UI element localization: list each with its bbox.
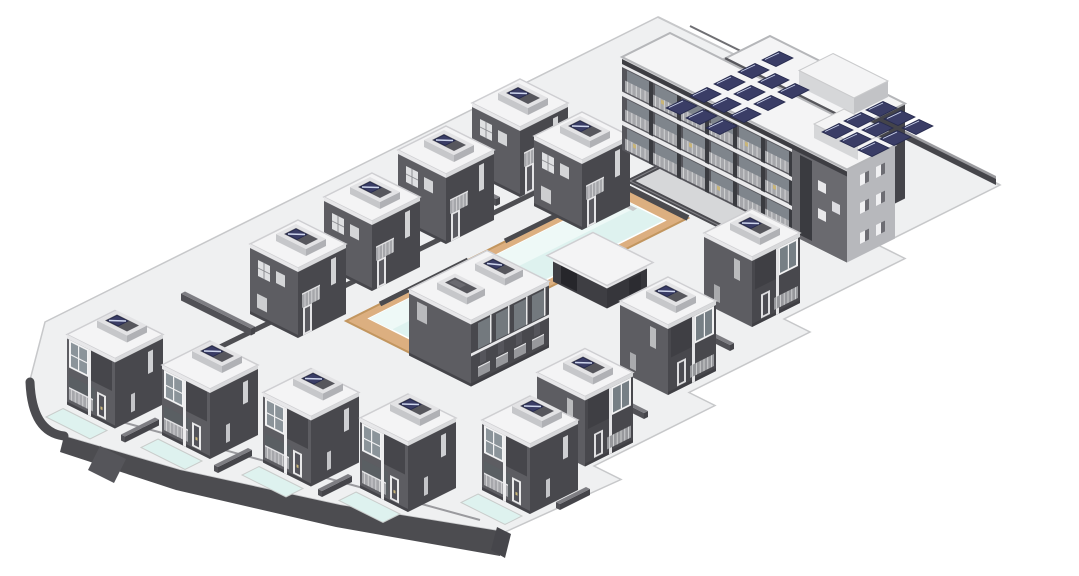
villa-bottom-5-se-detail [563, 435, 568, 460]
villa-bottom-5-se-detail [546, 478, 550, 498]
railing-baluster [631, 142, 632, 154]
railing-baluster [687, 141, 688, 153]
villa-right-3-se-detail [621, 430, 622, 442]
railing-baluster [645, 90, 646, 102]
villa-right-2-se-detail [700, 361, 701, 373]
villa-top-5 [534, 112, 630, 230]
villa-bottom-2-pillar [183, 380, 186, 448]
villa-bottom-4 [360, 394, 456, 512]
villa-top-4-well-solar-glint [510, 93, 527, 94]
villa-bottom-1-sw-detail [79, 392, 80, 404]
railing-baluster [631, 113, 632, 125]
villa-bottom-4-sw-detail [372, 476, 373, 488]
architectural-3d-model-viewport [0, 0, 1079, 576]
apartment-bay-mullion [761, 137, 765, 164]
villa-top-5-se-detail [615, 149, 620, 178]
railing-baluster [627, 111, 628, 122]
railing-baluster [785, 160, 786, 172]
railing-baluster [673, 162, 674, 174]
railing-baluster [636, 86, 637, 98]
villa-bottom-2-front-door [194, 425, 199, 448]
villa-bottom-2-sw-detail [174, 423, 175, 435]
villa-top-2-se-detail [385, 242, 386, 256]
railing-baluster [683, 139, 684, 150]
railing-baluster [640, 117, 641, 129]
villa-top-3-se-detail [453, 198, 454, 212]
villa-right-2-se-detail [707, 357, 708, 369]
railing-baluster [729, 132, 730, 144]
railing-baluster [631, 84, 632, 96]
apartment-bay-mullion [761, 166, 765, 193]
railing-baluster [655, 96, 656, 107]
villa-right-2-sw-detail [630, 352, 636, 371]
villa-top-5-well-solar-glint [572, 126, 589, 127]
railing-baluster [701, 147, 702, 159]
villa-bottom-1-well-solar-glint [109, 321, 126, 322]
railing-baluster [739, 196, 740, 207]
railing-baluster [757, 175, 758, 187]
tower-se-window-shade [865, 199, 869, 212]
railing-baluster [696, 145, 697, 157]
railing-baluster [748, 171, 749, 183]
villa-bottom-5-well-solar-glint [524, 406, 541, 407]
tower-se-window-shade [881, 191, 885, 204]
villa-bottom-1-se-detail [131, 393, 135, 413]
villa-right-3-se-detail [617, 432, 618, 444]
railing-baluster [724, 188, 725, 200]
tower-se-window-shade [881, 221, 885, 234]
railing-baluster [752, 173, 753, 185]
villa-bottom-5-sw-detail [490, 476, 491, 488]
railing-baluster [645, 148, 646, 160]
villa-bottom-4-front-door [392, 478, 397, 501]
villa-top-1-se-detail [331, 257, 336, 286]
villa-right-2-se-detail [704, 313, 705, 338]
villa-right-1-se-detail [788, 245, 789, 270]
villa-bottom-4-sw-detail [364, 472, 365, 484]
villa-bottom-5-front-door [514, 480, 519, 503]
villa-right-2-se-detail [692, 365, 693, 377]
villa-top-2-side-door [379, 259, 384, 286]
villa-right-3-well-solar-glint [575, 363, 592, 364]
villa-top-3-se-detail [456, 197, 457, 211]
villa-bottom-2-sw-detail [166, 419, 167, 431]
railing-baluster [664, 158, 665, 170]
villa-bottom-1-front-door [99, 395, 104, 418]
villa-top-4-se-detail [530, 150, 531, 164]
railing-baluster [739, 138, 740, 149]
villa-top-1-se-detail [311, 289, 312, 303]
villa-top-5-se-detail [589, 184, 590, 198]
railing-baluster [640, 146, 641, 158]
villa-bottom-1-se-detail [148, 350, 153, 375]
apartment-bay-mullion [649, 139, 653, 166]
railing-baluster [627, 140, 628, 151]
railing-baluster [636, 115, 637, 127]
railing-baluster [659, 98, 660, 110]
villa-bottom-2-se-detail [226, 423, 230, 443]
site-3d-render [0, 0, 1079, 576]
villa-bottom-5-sw-detail [497, 480, 498, 492]
villa-bottom-4-pillar [381, 433, 384, 501]
railing-baluster [659, 127, 660, 139]
villa-right-3-se-detail [628, 427, 629, 439]
villa-top-5-side-door [589, 198, 594, 225]
railing-baluster [780, 187, 781, 198]
villa-top-3-se-detail [479, 163, 484, 192]
villa-bottom-3-sw-detail [278, 452, 279, 464]
railing-baluster [687, 170, 688, 182]
villa-bottom-3-se-detail [344, 408, 349, 433]
villa-bottom-5-pillar [503, 435, 506, 503]
villa-bottom-4-sw-detail [375, 478, 376, 490]
railing-baluster [785, 189, 786, 201]
railing-baluster [711, 153, 712, 164]
villa-right-2-front-door [679, 361, 684, 384]
villa-top-1 [250, 220, 346, 338]
villa-right-2-se-detail [696, 363, 697, 375]
apartment-bay-mullion [677, 124, 681, 151]
railing-baluster [673, 133, 674, 145]
villa-top-4-side-door [527, 165, 532, 192]
railing-baluster [715, 155, 716, 167]
villa-top-5-se-detail [595, 181, 596, 195]
railing-baluster [767, 181, 768, 192]
villa-bottom-3-sw-detail [267, 447, 268, 459]
railing-baluster [627, 82, 628, 93]
villa-bottom-2 [162, 341, 258, 459]
villa-bottom-5 [482, 396, 578, 514]
villa-top-4-se-detail [527, 151, 528, 165]
villa-bottom-3-sw-detail [271, 448, 272, 460]
villa-right-1 [704, 209, 800, 327]
railing-baluster [752, 144, 753, 156]
villa-bottom-4-sw-detail [379, 480, 380, 492]
villa-top-3-side-door [453, 212, 458, 239]
villa-top-5-se-detail [599, 179, 600, 193]
railing-baluster [696, 174, 697, 186]
railing-baluster [757, 146, 758, 158]
villa-bottom-1-sw-detail [75, 390, 76, 402]
apartment-bay-mullion [649, 110, 653, 137]
villa-top-1-side-door [305, 306, 310, 333]
villa-bottom-5-sw-detail [501, 482, 502, 494]
villa-top-2-se-detail [405, 210, 410, 239]
railing-baluster [692, 172, 693, 184]
villa-right-1-front-door [763, 293, 768, 316]
villa-bottom-5-sw-detail [486, 474, 487, 486]
railing-baluster [645, 119, 646, 131]
villa-right-1-se-detail [791, 289, 792, 301]
railing-baluster [701, 176, 702, 188]
tower-se-window-shade [865, 171, 869, 184]
villa-right-1-se-detail [784, 293, 785, 305]
apartment-bay-mullion [705, 167, 709, 194]
tower-se-window-shade [881, 163, 885, 176]
villa-top-3-se-detail [459, 195, 460, 209]
villa-duplex-se-detail [544, 287, 546, 316]
railing-baluster [715, 184, 716, 196]
railing-baluster [780, 158, 781, 169]
villa-top-1-se-detail [308, 291, 309, 305]
railing-baluster [668, 160, 669, 172]
villa-right-3-front-door [596, 433, 601, 456]
railing-baluster [711, 182, 712, 193]
villa-top-1-se-detail [318, 286, 319, 300]
villa-top-3-se-detail [463, 193, 464, 207]
railing-baluster [664, 129, 665, 141]
villa-bottom-4-se-detail [441, 433, 446, 458]
apartment-bay-mullion [677, 153, 681, 180]
villa-bottom-1-sw-detail [71, 389, 72, 401]
railing-baluster [668, 131, 669, 143]
villa-right-3-se-detail [609, 436, 610, 448]
villa-bottom-3-pillar [284, 407, 287, 475]
railing-baluster [743, 169, 744, 181]
villa-right-1-se-detail [795, 287, 796, 299]
railing-baluster [720, 157, 721, 169]
railing-baluster [729, 190, 730, 202]
villa-duplex-se-detail [526, 296, 528, 325]
villa-right-2-se-detail [711, 355, 712, 367]
villa-top-1-se-detail [305, 292, 306, 306]
apartment-bay-mullion [733, 152, 737, 179]
railing-baluster [659, 156, 660, 168]
villa-bottom-3-well-solar-glint [305, 379, 322, 380]
villa-top-2-se-detail [389, 240, 390, 254]
railing-baluster [683, 168, 684, 179]
villa-top-2-se-detail [382, 244, 383, 258]
villa-bottom-3 [263, 369, 359, 487]
railing-baluster [655, 125, 656, 136]
railing-baluster [655, 154, 656, 165]
villa-bottom-2-sw-detail [170, 421, 171, 433]
villa-duplex-se-detail [490, 314, 492, 343]
villa-right-1-se-detail [776, 297, 777, 309]
villa-duplex-se-detail [508, 305, 510, 334]
railing-baluster [729, 161, 730, 173]
villa-right-1-well-solar-glint [742, 223, 759, 224]
railing-baluster [640, 88, 641, 100]
villa-bottom-1-sw-detail [82, 394, 83, 406]
villa-bottom-1-pillar [88, 349, 91, 417]
villa-right-3-se-detail [624, 428, 625, 440]
apartment-bay-mullion [649, 81, 653, 108]
villa-top-2-se-detail [392, 239, 393, 253]
villa-bottom-1-sw-detail [86, 396, 87, 408]
apartment-bay-mullion [733, 181, 737, 208]
villa-right-1-se-detail [780, 295, 781, 307]
villa-bottom-3-se-detail [327, 451, 331, 471]
villa-top-3-se-detail [466, 192, 467, 206]
villa-right-2 [620, 277, 716, 395]
villa-right-3-se-detail [613, 434, 614, 446]
railing-baluster [771, 154, 772, 165]
villa-bottom-2-se-detail [243, 380, 248, 405]
villa-top-2-se-detail [379, 245, 380, 259]
railing-baluster [771, 183, 772, 194]
villa-bottom-1 [67, 311, 163, 429]
tower-se-window-shade [865, 229, 869, 242]
railing-baluster [767, 152, 768, 163]
villa-right-2-well-solar-glint [658, 291, 675, 292]
villa-bottom-4-se-detail [424, 476, 428, 496]
villa-bottom-4-well-solar-glint [402, 404, 419, 405]
villa-top-5-se-detail [592, 183, 593, 197]
railing-baluster [739, 167, 740, 178]
apartment-bay-mullion [705, 138, 709, 165]
villa-right-2-sw-detail [650, 326, 656, 349]
villa-right-1-se-detail [788, 291, 789, 303]
villa-bottom-2-well-solar-glint [204, 351, 221, 352]
villa-top-1-well-solar-glint [288, 234, 305, 235]
railing-baluster [748, 200, 749, 212]
villa-top-2-well-solar-glint [362, 187, 379, 188]
railing-baluster [743, 140, 744, 152]
villa-top-3-well-solar-glint [436, 140, 453, 141]
villa-bottom-2-sw-detail [181, 427, 182, 439]
railing-baluster [724, 159, 725, 171]
villa-top-5-se-detail [602, 178, 603, 192]
villa-top-1-se-detail [315, 287, 316, 301]
villa-bottom-2-sw-detail [177, 425, 178, 437]
villa-bottom-5-sw-detail [494, 478, 495, 490]
railing-baluster [743, 198, 744, 210]
villa-bottom-3-front-door [295, 453, 300, 476]
railing-baluster [776, 156, 777, 167]
villa-bottom-4-sw-detail [368, 474, 369, 486]
end-tower-glazing [800, 155, 812, 241]
villa-right-2-se-detail [704, 359, 705, 371]
villa-bottom-3-sw-detail [282, 454, 283, 466]
villa-right-3-se-detail [621, 384, 622, 409]
villa-bottom-3-sw-detail [275, 450, 276, 462]
villa-right-1-sw-detail [734, 258, 740, 281]
